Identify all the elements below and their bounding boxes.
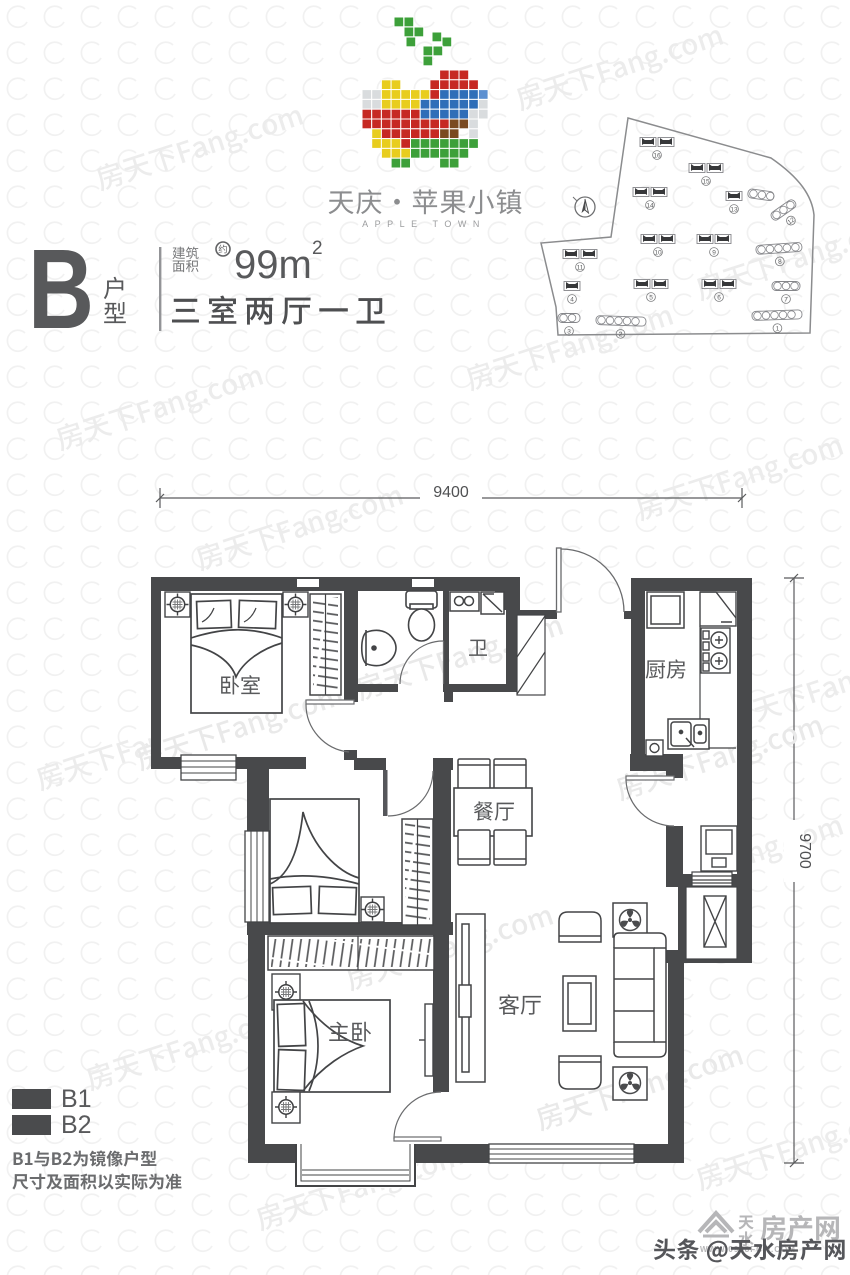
svg-text:99m: 99m <box>234 243 312 287</box>
svg-text:16: 16 <box>653 152 661 159</box>
svg-text:10: 10 <box>654 249 662 256</box>
svg-text:1: 1 <box>776 325 780 332</box>
svg-text:14: 14 <box>646 202 654 209</box>
svg-text:9400: 9400 <box>433 484 469 501</box>
svg-text:6: 6 <box>717 294 721 301</box>
svg-text:7: 7 <box>784 296 788 303</box>
svg-text:13: 13 <box>730 206 738 213</box>
svg-text:4: 4 <box>570 296 574 303</box>
svg-text:2: 2 <box>619 331 623 338</box>
svg-text:15: 15 <box>702 178 710 185</box>
svg-text:3: 3 <box>567 328 571 335</box>
svg-text:B2: B2 <box>61 1111 92 1139</box>
svg-text:11: 11 <box>577 264 584 271</box>
svg-text:9: 9 <box>712 249 716 256</box>
svg-text:9700: 9700 <box>796 833 813 869</box>
svg-text:APPLE TOWN: APPLE TOWN <box>362 219 486 229</box>
svg-text:B: B <box>28 226 94 352</box>
svg-text:2: 2 <box>312 238 323 259</box>
svg-text:B1: B1 <box>61 1085 92 1113</box>
svg-text:5: 5 <box>649 294 653 301</box>
